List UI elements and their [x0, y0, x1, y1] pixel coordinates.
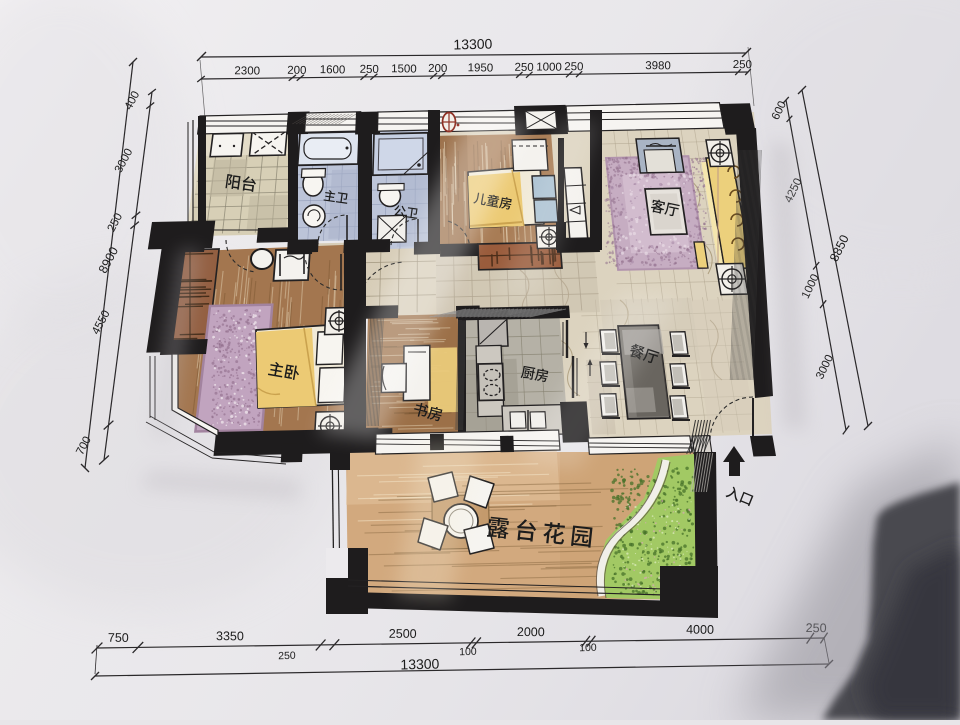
svg-text:1600: 1600 — [320, 64, 346, 76]
svg-text:250: 250 — [514, 62, 533, 74]
svg-text:200: 200 — [287, 65, 306, 77]
svg-text:250: 250 — [278, 650, 296, 662]
svg-text:250: 250 — [360, 64, 379, 76]
svg-text:750: 750 — [108, 631, 129, 645]
svg-text:2500: 2500 — [389, 627, 417, 641]
svg-text:1950: 1950 — [468, 62, 494, 74]
svg-text:100: 100 — [579, 642, 597, 654]
svg-text:3980: 3980 — [645, 60, 671, 72]
svg-text:1000: 1000 — [536, 61, 562, 73]
svg-text:3350: 3350 — [216, 629, 244, 643]
svg-text:2300: 2300 — [234, 65, 260, 77]
svg-text:2000: 2000 — [517, 625, 545, 639]
svg-text:4000: 4000 — [686, 623, 714, 637]
svg-text:13300: 13300 — [453, 36, 492, 53]
svg-text:250: 250 — [564, 61, 583, 73]
svg-text:100: 100 — [459, 646, 477, 658]
svg-text:13300: 13300 — [400, 656, 439, 673]
svg-text:1500: 1500 — [391, 63, 417, 75]
svg-text:200: 200 — [428, 63, 447, 75]
